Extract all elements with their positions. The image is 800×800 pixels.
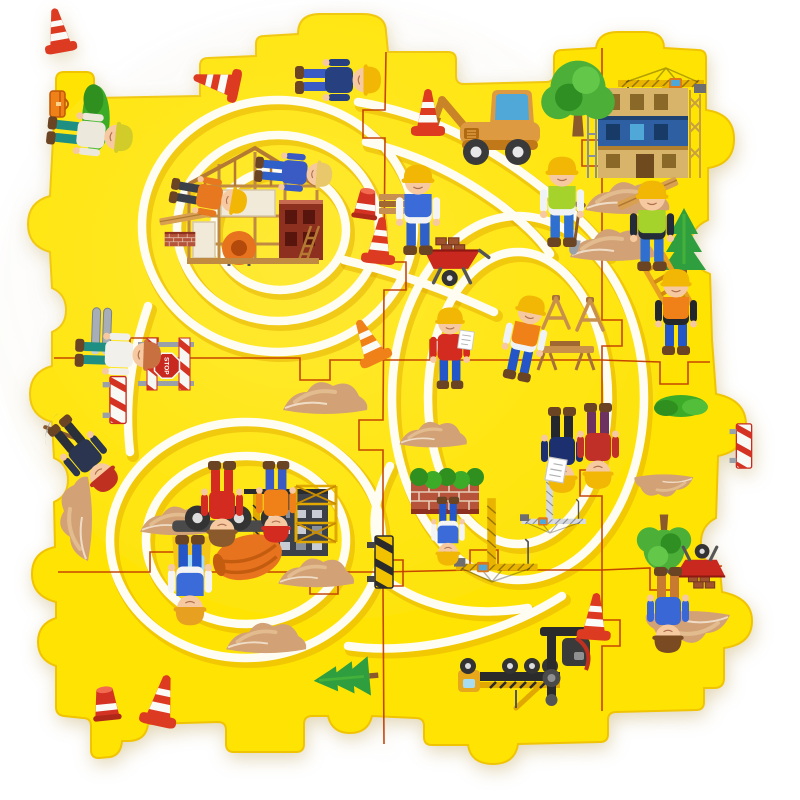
product-photo: STOP — [0, 0, 800, 800]
play-mat — [0, 0, 752, 764]
clipboard-paper — [458, 330, 475, 350]
blueprint-paper-inverted — [545, 457, 567, 483]
brick-stack — [165, 232, 196, 246]
toolbox — [50, 91, 68, 117]
puzzle-mat-photo: STOP — [0, 0, 800, 800]
traffic-cone-loose — [38, 6, 78, 56]
